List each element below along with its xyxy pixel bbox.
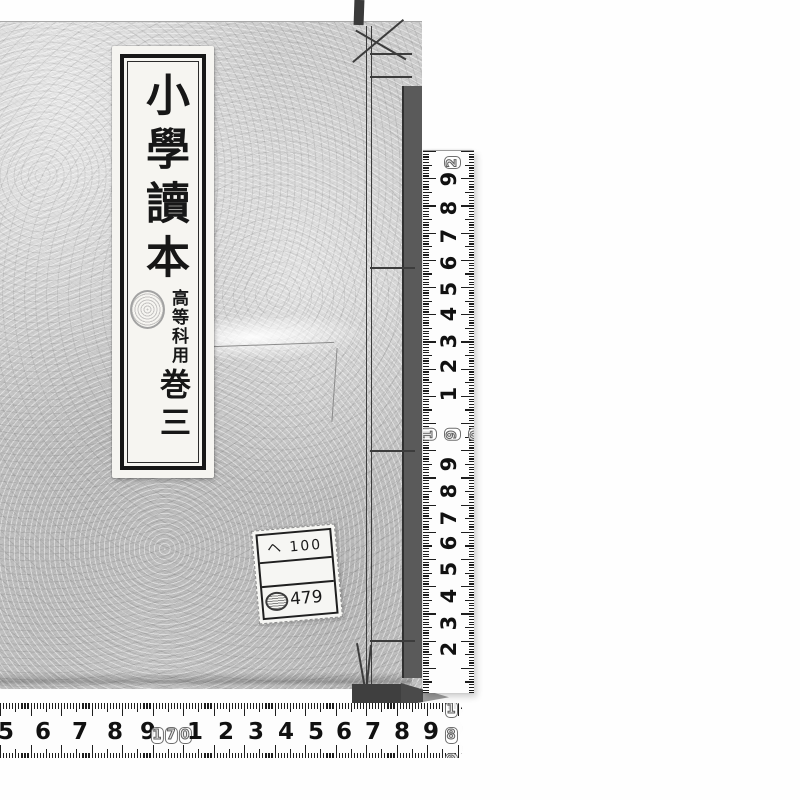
ruler-tick xyxy=(423,208,429,209)
ruler-tick xyxy=(58,753,59,759)
ruler-tick xyxy=(423,156,429,157)
ruler-tick xyxy=(64,753,65,759)
ruler-tick xyxy=(423,442,429,443)
ruler-tick xyxy=(469,660,475,661)
ruler-number: 9 xyxy=(437,172,461,187)
ruler-tick xyxy=(423,545,432,546)
ruler-tick xyxy=(412,703,413,712)
ruler-tick xyxy=(423,453,429,454)
ruler-tick xyxy=(469,154,475,155)
ruler-tick xyxy=(423,548,429,549)
ruler-tick xyxy=(116,703,117,709)
ruler-tick xyxy=(469,167,475,168)
ruler-tick xyxy=(9,753,10,759)
ruler-tick xyxy=(469,407,475,408)
ruler-tick xyxy=(423,331,429,332)
ruler-tick xyxy=(469,554,475,555)
ruler-tick xyxy=(423,586,436,587)
ruler-tick xyxy=(469,526,475,527)
ruler-number: 5 xyxy=(437,562,461,577)
ruler-tick xyxy=(281,703,282,709)
ruler-tick xyxy=(238,753,239,759)
ruler-tick xyxy=(153,745,154,758)
ruler-tick xyxy=(469,268,475,269)
ruler-tick xyxy=(423,233,436,234)
ruler-tick xyxy=(423,679,429,680)
ruler-number: 3 xyxy=(437,334,461,349)
ruler-number: 5 xyxy=(0,719,14,745)
ruler-tick xyxy=(423,339,429,340)
ruler-tick xyxy=(366,745,367,758)
ruler-number: 8 xyxy=(437,201,461,216)
ruler-decade-digit: 7 xyxy=(164,727,177,744)
ruler-tick xyxy=(423,203,429,204)
ruler-tick xyxy=(469,254,475,255)
ruler-tick xyxy=(469,292,475,293)
ruler-tick xyxy=(461,532,474,533)
ruler-tick xyxy=(162,703,163,709)
ruler-tick xyxy=(423,619,429,620)
ruler-tick xyxy=(232,753,233,759)
ruler-tick xyxy=(183,745,184,758)
ruler-tick xyxy=(131,703,132,709)
ruler-tick xyxy=(439,753,440,759)
ruler-tick xyxy=(107,703,108,712)
ruler-tick xyxy=(421,703,422,709)
ruler-tick xyxy=(73,703,74,709)
ruler-tick xyxy=(384,703,385,709)
ruler-tick xyxy=(469,611,475,612)
ruler-tick xyxy=(49,753,50,759)
ruler-tick xyxy=(469,535,475,536)
ruler-tick xyxy=(469,238,475,239)
ruler-tick xyxy=(253,753,254,759)
ruler-tick xyxy=(469,570,475,571)
ruler-tick xyxy=(336,745,337,758)
ruler-tick xyxy=(423,195,429,196)
ruler-tick xyxy=(12,753,13,759)
ruler-tick xyxy=(469,203,475,204)
ruler-tick xyxy=(70,753,71,759)
ruler-tick xyxy=(265,753,266,759)
ruler-tick xyxy=(271,703,272,709)
ruler-tick xyxy=(293,703,294,709)
ruler-tick xyxy=(469,211,475,212)
ruler-tick xyxy=(423,268,429,269)
ruler-tick xyxy=(469,513,475,514)
ruler-tick xyxy=(171,703,172,709)
ruler-tick xyxy=(469,605,475,606)
ruler-tick xyxy=(465,545,474,546)
ruler-number: 9 xyxy=(423,719,439,745)
ruler-tick xyxy=(98,703,99,709)
ruler-tick xyxy=(423,499,429,500)
ruler-tick xyxy=(423,393,429,394)
ruler-tick xyxy=(180,753,181,759)
ruler-tick xyxy=(469,483,475,484)
ruler-tick xyxy=(461,205,474,206)
ruler-tick xyxy=(290,703,291,712)
ruler-tick xyxy=(423,347,429,348)
ruler-tick xyxy=(357,703,358,709)
ruler-tick xyxy=(469,385,475,386)
ruler-tick xyxy=(469,548,475,549)
ruler-tick xyxy=(403,703,404,709)
ruler-tick xyxy=(43,753,44,759)
ruler-tick xyxy=(3,753,4,759)
ruler-tick xyxy=(469,317,475,318)
ruler-tick xyxy=(412,749,413,758)
book-title: 小學讀本 xyxy=(141,72,185,288)
ruler-number: 6 xyxy=(336,719,352,745)
ruler-tick xyxy=(465,464,474,465)
ruler-tick xyxy=(363,753,364,759)
ruler-tick xyxy=(469,456,475,457)
ruler-tick xyxy=(262,753,263,759)
ruler-decade-number: 170 xyxy=(150,719,192,745)
ruler-tick xyxy=(423,681,432,682)
ruler-tick xyxy=(284,703,285,709)
ruler-tick xyxy=(320,703,321,712)
ruler-tick xyxy=(156,703,157,709)
ruler-tick xyxy=(423,535,429,536)
ruler-tick xyxy=(85,703,86,709)
ruler-tick xyxy=(424,703,425,709)
ruler-tick xyxy=(423,360,429,361)
ruler-tick xyxy=(311,703,312,709)
ruler-tick xyxy=(24,703,25,709)
ruler-tick xyxy=(384,753,385,759)
ruler-tick xyxy=(423,205,436,206)
ruler-tick xyxy=(229,703,230,712)
ruler-tick xyxy=(101,703,102,709)
ruler-tick xyxy=(423,687,429,688)
ruler-tick xyxy=(149,753,150,759)
ruler-tick xyxy=(423,273,432,274)
owner-seal-stamp-icon xyxy=(130,290,165,329)
ruler-tick xyxy=(423,311,429,312)
ruler-tick xyxy=(465,246,474,247)
ruler-tick xyxy=(469,507,475,508)
ruler-tick xyxy=(241,753,242,759)
ruler-tick xyxy=(128,753,129,759)
ruler-tick xyxy=(217,703,218,709)
ruler-tick xyxy=(137,749,138,758)
ruler-tick xyxy=(423,159,429,160)
ruler-tick xyxy=(469,257,475,258)
ruler-tick xyxy=(461,559,474,560)
library-stamp-icon xyxy=(264,590,289,611)
ruler-tick xyxy=(469,235,475,236)
ruler-tick xyxy=(354,753,355,759)
ruler-tick xyxy=(423,181,429,182)
ruler-tick xyxy=(275,703,276,716)
ruler-tick xyxy=(469,472,475,473)
ruler-tick xyxy=(469,486,475,487)
ruler-tick xyxy=(128,703,129,709)
ruler-tick xyxy=(326,703,327,709)
ruler-tick xyxy=(469,649,475,650)
ruler-tick xyxy=(6,753,7,759)
ruler-tick xyxy=(423,469,429,470)
ruler-tick xyxy=(423,222,429,223)
ruler-tick xyxy=(469,692,475,693)
ruler-tick xyxy=(49,703,50,709)
ruler-tick xyxy=(469,589,475,590)
ruler-tick xyxy=(58,703,59,709)
ruler-tick xyxy=(220,703,221,709)
ruler-number: 4 xyxy=(278,719,294,745)
ruler-tick xyxy=(424,753,425,759)
ruler-tick xyxy=(339,703,340,709)
ruler-tick xyxy=(423,605,429,606)
ruler-tick xyxy=(469,222,475,223)
ruler-tick xyxy=(469,499,475,500)
ruler-tick xyxy=(423,578,429,579)
ruler-tick xyxy=(262,703,263,709)
ruler-tick xyxy=(162,753,163,759)
ruler-tick xyxy=(469,173,475,174)
ruler-tick xyxy=(423,526,429,527)
ruler-tick xyxy=(400,703,401,709)
ruler-tick xyxy=(461,260,474,261)
ruler-tick xyxy=(469,616,475,617)
photo-stage: 小學讀本 高等科用 巻三 ヘ 100 479 29876543211909876… xyxy=(0,0,800,800)
ruler-tick xyxy=(189,753,190,759)
ruler-tick xyxy=(423,252,429,253)
ruler-tick xyxy=(214,703,215,716)
ruler-tick xyxy=(423,646,429,647)
ruler-tick xyxy=(469,197,475,198)
ruler-tick xyxy=(336,703,337,716)
ruler-tick xyxy=(95,703,96,709)
ruler-tick xyxy=(34,753,35,759)
ruler-tick xyxy=(204,703,205,709)
ruler-tick xyxy=(469,690,475,691)
ruler-tick xyxy=(40,703,41,709)
binding-thread-tab xyxy=(354,0,365,25)
ruler-tick xyxy=(85,753,86,759)
ruler-tick xyxy=(423,573,432,574)
ruler-tick xyxy=(423,472,429,473)
ruler-tick xyxy=(469,524,475,525)
ruler-tick xyxy=(423,594,429,595)
ruler-tick xyxy=(326,753,327,759)
ruler-number: 8 xyxy=(107,719,123,745)
ruler-tick xyxy=(122,703,123,716)
ruler-tick xyxy=(55,703,56,709)
ruler-tick xyxy=(369,703,370,709)
ruler-tick xyxy=(423,662,429,663)
ruler-tick xyxy=(469,412,475,413)
ruler-tick xyxy=(469,159,475,160)
ruler-tick xyxy=(423,513,429,514)
ruler-tick xyxy=(423,649,429,650)
ruler-tick xyxy=(195,753,196,759)
ruler-tick xyxy=(423,477,436,478)
ruler-tick xyxy=(390,753,391,759)
ruler-decade-digit: 9 xyxy=(444,428,461,441)
ruler-tick xyxy=(469,363,475,364)
ruler-number: 6 xyxy=(35,719,51,745)
ruler-tick xyxy=(423,186,429,187)
ruler-tick xyxy=(423,551,429,552)
ruler-tick xyxy=(116,753,117,759)
ruler-tick xyxy=(469,646,475,647)
ruler-tick xyxy=(423,641,436,642)
ruler-tick xyxy=(469,445,475,446)
ruler-tick xyxy=(469,390,475,391)
ruler-tick xyxy=(296,703,297,709)
ruler-tick xyxy=(461,613,474,614)
ruler-tick xyxy=(210,703,211,709)
ruler-tick xyxy=(423,254,429,255)
ruler-tick xyxy=(320,749,321,758)
ruler-tick xyxy=(423,603,429,604)
ruler-tick xyxy=(299,703,300,709)
ruler-tick xyxy=(469,360,475,361)
ruler-tick xyxy=(6,703,7,709)
ruler-tick xyxy=(469,186,475,187)
ruler-tick xyxy=(207,703,208,709)
ruler-tick xyxy=(201,753,202,759)
ruler-tick xyxy=(465,382,474,383)
binding-stitch xyxy=(370,450,415,452)
ruler-tick xyxy=(423,154,429,155)
ruler-tick xyxy=(351,749,352,758)
ruler-tick xyxy=(9,703,10,709)
ruler-tick xyxy=(469,562,475,563)
ruler-tick xyxy=(469,687,475,688)
ruler-number: 6 xyxy=(437,536,461,551)
ruler-tick xyxy=(469,608,475,609)
ruler-tick xyxy=(342,703,343,709)
ruler-tick xyxy=(244,745,245,758)
ruler-tick xyxy=(27,753,28,759)
ruler-tick xyxy=(192,753,193,759)
ruler-tick xyxy=(469,181,475,182)
ruler-tick xyxy=(275,745,276,758)
ruler-tick xyxy=(469,603,475,604)
ruler-tick xyxy=(314,703,315,709)
ruler-tick xyxy=(177,753,178,759)
ruler-decade-digit: 0 xyxy=(468,428,475,441)
ruler-tick xyxy=(415,703,416,709)
ruler-tick xyxy=(469,252,475,253)
ruler-tick xyxy=(423,559,436,560)
ruler-tick xyxy=(79,703,80,709)
ruler-tick xyxy=(423,363,429,364)
ruler-tick xyxy=(406,753,407,759)
ruler-tick xyxy=(423,341,436,342)
ruler-number: 7 xyxy=(72,719,88,745)
ruler-tick xyxy=(423,668,436,669)
library-accession-number: 479 xyxy=(289,587,323,610)
ruler-tick xyxy=(198,703,199,712)
ruler-number: 4 xyxy=(437,307,461,322)
ruler-tick xyxy=(372,753,373,759)
ruler-tick xyxy=(430,703,431,709)
ruler-tick xyxy=(423,532,436,533)
ruler-tick xyxy=(342,753,343,759)
ruler-tick xyxy=(469,230,475,231)
ruler-tick xyxy=(423,390,429,391)
ruler-tick xyxy=(393,703,394,709)
ruler-tick xyxy=(469,671,475,672)
ruler-tick xyxy=(244,703,245,716)
ruler-tick xyxy=(423,214,429,215)
ruler-tick xyxy=(469,276,475,277)
ruler-tick xyxy=(390,703,391,709)
ruler-tick xyxy=(415,753,416,759)
ruler-tick xyxy=(423,388,429,389)
ruler-tick xyxy=(469,635,475,636)
ruler-tick xyxy=(180,703,181,709)
ruler-tick xyxy=(423,554,429,555)
ruler-tick xyxy=(430,753,431,759)
ruler-tick xyxy=(406,703,407,709)
ruler-tick xyxy=(423,654,432,655)
ruler-vertical: 298765432119098765432 xyxy=(423,150,474,693)
ruler-tick xyxy=(195,703,196,709)
ruler-tick xyxy=(423,543,429,544)
ruler-tick xyxy=(423,496,429,497)
ruler-tick xyxy=(192,703,193,709)
ruler-tick xyxy=(469,295,475,296)
ruler-tick xyxy=(64,703,65,709)
ruler-tick xyxy=(423,507,429,508)
ruler-tick xyxy=(232,703,233,709)
ruler-tick xyxy=(469,657,475,658)
ruler-tick xyxy=(461,233,474,234)
ruler-tick xyxy=(378,703,379,709)
ruler-tick xyxy=(363,703,364,709)
ruler-tick xyxy=(423,475,429,476)
ruler-tick xyxy=(461,369,474,370)
ruler-tick xyxy=(423,301,432,302)
ruler-tick xyxy=(165,703,166,709)
ruler-tick xyxy=(423,524,429,525)
binding-thread-vertical xyxy=(366,26,372,688)
ruler-tick xyxy=(134,703,135,709)
ruler-tick xyxy=(423,320,429,321)
course-note: 高等科用 xyxy=(169,289,186,365)
ruler-tick xyxy=(469,502,475,503)
ruler-tick xyxy=(265,703,266,709)
ruler-tick xyxy=(423,200,429,201)
ruler-tick xyxy=(381,703,382,712)
ruler-tick xyxy=(423,483,429,484)
ruler-tick xyxy=(423,265,429,266)
ruler-tick xyxy=(397,745,398,758)
ruler-tick xyxy=(469,515,475,516)
ruler-tick xyxy=(469,279,475,280)
ruler-tick xyxy=(423,371,429,372)
ruler-tick xyxy=(469,469,475,470)
ruler-tick xyxy=(469,322,475,323)
ruler-tick xyxy=(469,350,475,351)
ruler-tick xyxy=(461,668,474,669)
ruler-tick xyxy=(226,753,227,759)
ruler-tick xyxy=(387,753,388,759)
ruler-tick xyxy=(423,379,429,380)
ruler-tick xyxy=(423,673,429,674)
ruler-tick xyxy=(423,336,429,337)
ruler-tick xyxy=(423,616,429,617)
ruler-tick xyxy=(423,589,429,590)
ruler-tick xyxy=(423,564,429,565)
ruler-tick xyxy=(423,445,429,446)
